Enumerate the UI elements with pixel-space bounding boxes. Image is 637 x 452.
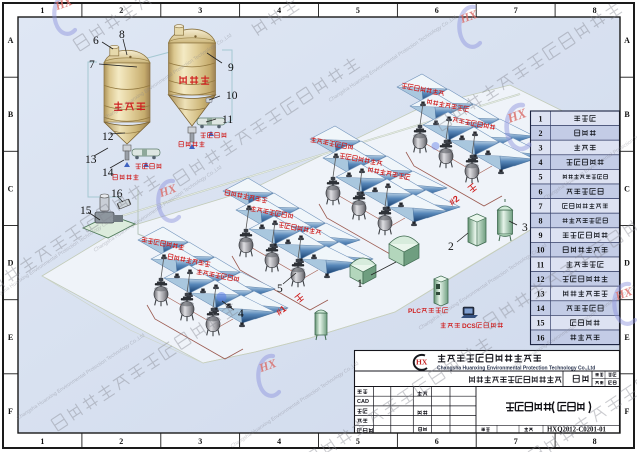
svg-text:HX: HX — [416, 358, 428, 367]
svg-text:8: 8 — [593, 6, 597, 15]
svg-text:4: 4 — [277, 6, 281, 15]
svg-text:DCS: DCS — [462, 323, 476, 330]
svg-text:15: 15 — [80, 205, 92, 217]
svg-text:16: 16 — [537, 333, 545, 342]
svg-text:4: 4 — [539, 158, 543, 167]
svg-text:12: 12 — [102, 131, 114, 143]
svg-text:5: 5 — [277, 283, 283, 295]
svg-text:13: 13 — [85, 154, 97, 166]
svg-text:14: 14 — [102, 167, 114, 179]
svg-text:2: 2 — [539, 129, 543, 138]
svg-text:D: D — [8, 259, 14, 268]
svg-text:C: C — [624, 184, 630, 193]
svg-text:6: 6 — [435, 437, 439, 446]
svg-text:8: 8 — [119, 29, 125, 41]
svg-text:6: 6 — [435, 6, 439, 15]
svg-text:8: 8 — [539, 217, 543, 226]
svg-text:E: E — [8, 333, 13, 342]
svg-text:4: 4 — [277, 437, 281, 446]
svg-text:6: 6 — [539, 187, 543, 196]
svg-text:D: D — [624, 259, 630, 268]
svg-text:A: A — [624, 36, 630, 45]
svg-text:F: F — [8, 407, 13, 416]
svg-text:F: F — [625, 407, 630, 416]
svg-text:PLC: PLC — [408, 308, 421, 315]
svg-text:12: 12 — [537, 275, 545, 284]
svg-text:5: 5 — [539, 173, 543, 182]
svg-text:2: 2 — [448, 241, 454, 253]
svg-text:11: 11 — [222, 114, 233, 126]
svg-text:7: 7 — [539, 202, 543, 211]
svg-text:8: 8 — [593, 437, 597, 446]
svg-text:A: A — [8, 36, 14, 45]
svg-text:15: 15 — [537, 319, 545, 328]
svg-text:1: 1 — [357, 278, 363, 290]
svg-text:9: 9 — [539, 231, 543, 240]
svg-text:B: B — [624, 110, 630, 119]
svg-text:7: 7 — [514, 6, 518, 15]
svg-text:3: 3 — [198, 437, 202, 446]
svg-text:2: 2 — [119, 437, 123, 446]
svg-text:9: 9 — [228, 62, 234, 74]
svg-text:3: 3 — [198, 6, 202, 15]
svg-text:CAD: CAD — [357, 399, 369, 405]
svg-text:14: 14 — [537, 304, 545, 313]
svg-text:E: E — [624, 333, 629, 342]
svg-text:3: 3 — [539, 144, 543, 153]
svg-text:1: 1 — [539, 114, 543, 123]
svg-text:5: 5 — [356, 6, 360, 15]
svg-text:5: 5 — [356, 437, 360, 446]
svg-text:1: 1 — [40, 437, 44, 446]
svg-text:10: 10 — [226, 90, 238, 102]
svg-text:1: 1 — [40, 6, 44, 15]
svg-text:B: B — [8, 110, 14, 119]
svg-text:3: 3 — [522, 222, 528, 234]
svg-text:7: 7 — [89, 59, 95, 71]
svg-text:4: 4 — [238, 308, 244, 320]
svg-text:11: 11 — [537, 260, 545, 269]
svg-text:7: 7 — [514, 437, 518, 446]
svg-text:C: C — [8, 184, 14, 193]
